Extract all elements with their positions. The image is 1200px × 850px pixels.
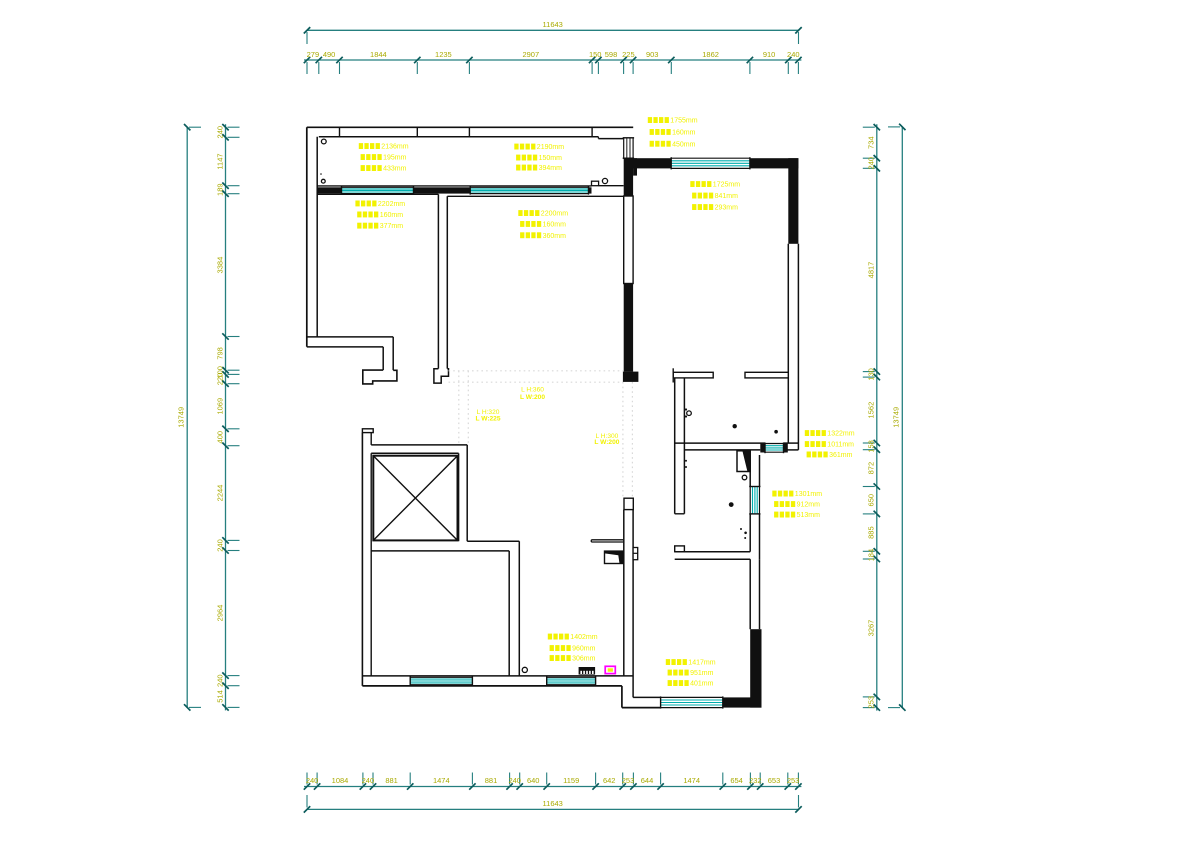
svg-text:2190mm: 2190mm [537,144,564,151]
svg-text:1147: 1147 [215,153,224,169]
svg-text:4817: 4817 [866,262,875,279]
svg-text:232: 232 [749,776,762,785]
svg-text:306mm: 306mm [572,656,596,663]
svg-text:160mm: 160mm [380,212,404,219]
svg-text:1322mm: 1322mm [827,431,854,438]
svg-text:1474: 1474 [683,776,700,785]
svg-text:160mm: 160mm [543,222,567,229]
svg-text:1084: 1084 [332,776,349,785]
svg-text:2202mm: 2202mm [378,201,405,208]
svg-text:1402mm: 1402mm [570,634,597,641]
svg-text:253: 253 [866,696,875,709]
svg-text:654: 654 [730,776,743,785]
svg-text:2200mm: 2200mm [541,211,568,218]
svg-text:1755mm: 1755mm [670,118,697,125]
svg-text:2964: 2964 [215,605,224,622]
svg-text:1235: 1235 [435,50,452,59]
svg-text:401mm: 401mm [690,681,714,688]
svg-text:881: 881 [485,776,498,785]
svg-text:841mm: 841mm [715,193,739,200]
svg-text:1562: 1562 [866,402,875,419]
svg-text:158: 158 [866,440,875,453]
svg-text:903: 903 [646,50,659,59]
svg-text:644: 644 [641,776,654,785]
svg-text:L W:225: L W:225 [475,415,500,422]
svg-text:1069: 1069 [215,398,224,415]
svg-text:189: 189 [215,183,224,196]
svg-text:150: 150 [589,50,602,59]
svg-text:514: 514 [215,690,224,703]
svg-text:1725mm: 1725mm [713,182,740,189]
svg-text:11643: 11643 [543,20,563,29]
svg-text:1844: 1844 [370,50,387,59]
svg-text:1862: 1862 [702,50,719,59]
svg-text:130: 130 [866,368,875,381]
svg-text:253: 253 [622,776,635,785]
svg-text:433mm: 433mm [383,166,407,173]
svg-text:13749: 13749 [892,407,901,428]
svg-text:513mm: 513mm [797,512,821,519]
svg-text:L W:200: L W:200 [594,439,619,446]
svg-text:1474: 1474 [433,776,450,785]
svg-text:377mm: 377mm [380,223,404,230]
svg-text:490: 490 [323,50,336,59]
svg-text:293mm: 293mm [715,205,739,212]
svg-text:240: 240 [215,674,224,687]
svg-text:2907: 2907 [522,50,539,59]
svg-text:640: 640 [527,776,540,785]
svg-text:1417mm: 1417mm [688,660,715,667]
svg-text:240: 240 [306,776,319,785]
svg-text:885: 885 [866,526,875,539]
svg-text:960mm: 960mm [572,646,596,653]
svg-text:653: 653 [768,776,781,785]
svg-text:598: 598 [605,50,618,59]
svg-text:734: 734 [866,136,875,149]
svg-text:L H:360: L H:360 [521,386,544,393]
svg-text:872: 872 [866,462,875,475]
svg-text:2244: 2244 [215,485,224,502]
svg-text:240: 240 [787,50,800,59]
svg-text:3267: 3267 [866,620,875,637]
svg-text:150mm: 150mm [539,155,563,162]
svg-text:951mm: 951mm [690,670,714,677]
svg-text:394mm: 394mm [539,165,563,172]
svg-text:3384: 3384 [215,257,224,274]
svg-text:1159: 1159 [563,776,579,785]
svg-text:220: 220 [215,373,224,386]
svg-text:798: 798 [215,347,224,360]
svg-text:240: 240 [215,539,224,552]
svg-text:195mm: 195mm [383,155,407,162]
svg-text:253: 253 [787,776,800,785]
svg-text:650: 650 [866,494,875,507]
svg-text:400: 400 [215,431,224,444]
svg-text:225: 225 [622,50,635,59]
svg-text:361mm: 361mm [829,452,853,459]
svg-text:160mm: 160mm [672,130,696,137]
svg-text:1301mm: 1301mm [795,491,822,498]
svg-text:L W:200: L W:200 [520,394,545,401]
svg-text:279: 279 [307,50,320,59]
svg-text:912mm: 912mm [797,502,821,509]
svg-text:910: 910 [763,50,776,59]
svg-text:881: 881 [385,776,398,785]
svg-text:360mm: 360mm [543,233,567,240]
svg-text:11643: 11643 [543,799,563,808]
svg-text:13749: 13749 [177,407,186,428]
svg-text:642: 642 [603,776,616,785]
svg-text:450mm: 450mm [672,141,696,148]
svg-text:184: 184 [866,549,875,562]
svg-text:240: 240 [508,776,521,785]
svg-text:2136mm: 2136mm [381,144,408,151]
svg-text:240: 240 [215,126,224,139]
svg-text:1011mm: 1011mm [827,442,854,449]
svg-text:240: 240 [362,776,375,785]
svg-text:240: 240 [866,157,875,170]
